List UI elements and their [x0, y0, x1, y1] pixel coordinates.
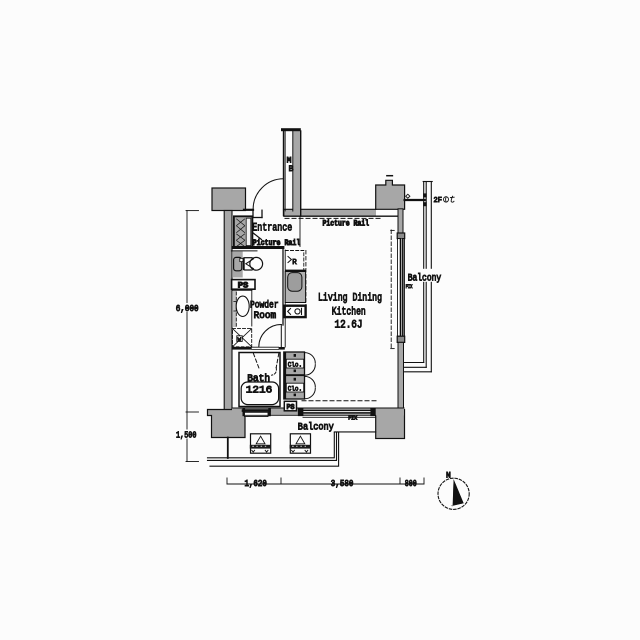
svg-text:Kitchen: Kitchen	[332, 306, 366, 318]
svg-text:PS: PS	[238, 282, 249, 291]
svg-text:800: 800	[405, 479, 417, 489]
svg-text:Entrance: Entrance	[252, 222, 292, 234]
svg-text:Balcony: Balcony	[408, 272, 442, 284]
svg-text:N: N	[446, 472, 451, 481]
svg-text:Clo.: Clo.	[288, 385, 303, 393]
svg-text:Balcony: Balcony	[298, 422, 334, 434]
svg-text:Room: Room	[254, 311, 277, 322]
svg-text:2F: 2F	[434, 197, 442, 205]
svg-text:Bath: Bath	[247, 373, 270, 385]
svg-text:1,620: 1,620	[245, 479, 267, 489]
svg-text:1,500: 1,500	[176, 431, 197, 441]
svg-text:6,000: 6,000	[176, 304, 199, 314]
svg-text:1216: 1216	[246, 384, 272, 396]
svg-text:Powder: Powder	[250, 300, 279, 312]
svg-text:Living Dining: Living Dining	[318, 293, 382, 305]
svg-text:PS: PS	[287, 404, 295, 412]
svg-text:R: R	[292, 259, 297, 267]
svg-text:Picture Rail: Picture Rail	[323, 220, 370, 229]
svg-text:3,580: 3,580	[331, 479, 354, 489]
svg-text:B: B	[289, 165, 294, 174]
svg-text:Clo.: Clo.	[288, 361, 303, 369]
svg-text:FIX: FIX	[406, 284, 413, 290]
svg-text:FIX: FIX	[348, 415, 357, 421]
svg-text:12.6J: 12.6J	[335, 319, 363, 331]
